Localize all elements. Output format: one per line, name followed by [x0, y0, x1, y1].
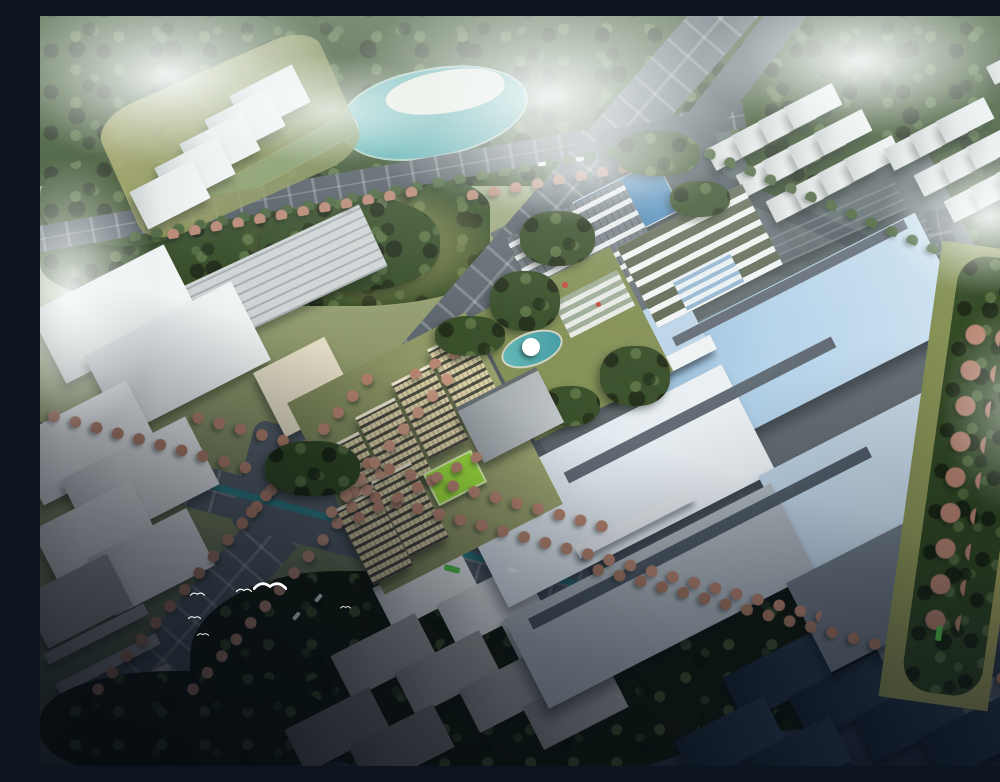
cloud — [880, 136, 1000, 296]
bird-icon — [253, 579, 287, 592]
cloud — [700, 16, 1000, 136]
bird-icon — [190, 591, 205, 597]
cloud — [940, 296, 1000, 516]
bird-icon — [340, 605, 351, 609]
cloud — [40, 156, 160, 436]
bird-icon — [236, 587, 252, 593]
cloud — [220, 56, 440, 166]
bird-icon — [188, 615, 201, 620]
cloud — [460, 106, 720, 226]
bird-icon — [197, 632, 209, 637]
aerial-scene — [40, 16, 1000, 766]
